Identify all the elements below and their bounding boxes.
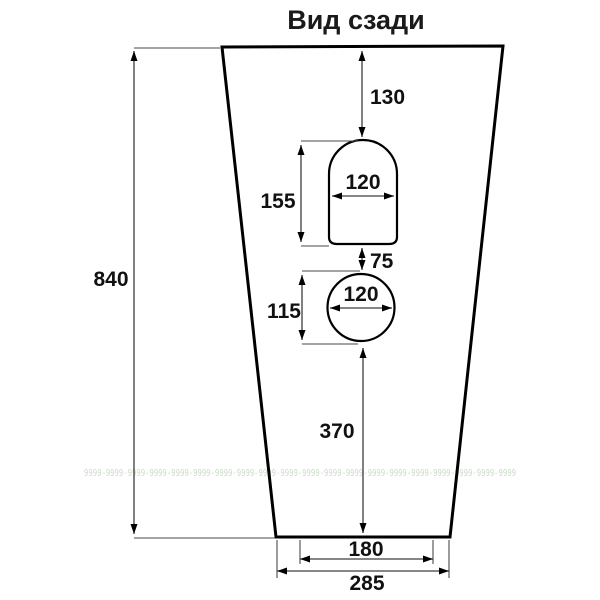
dim-circle-to-bottom: 370 <box>319 348 363 533</box>
dim-bottom-inner-width: 180 <box>300 538 433 564</box>
dim-top-to-arch: 130 <box>362 51 405 137</box>
dim-label-circle-to-bottom: 370 <box>319 420 354 443</box>
technical-drawing-canvas: Вид сзади 9999-9999-9999-9999-9999-9999-… <box>0 0 600 600</box>
dim-label-bottom-outer-width: 285 <box>349 572 384 595</box>
dim-arch-height: 155 <box>260 141 358 246</box>
drawing-title: Вид сзади <box>287 5 425 35</box>
watermark-text: 9999-9999-9999-9999-9999-9999-9999-9999-… <box>84 468 516 479</box>
dim-label-total-height: 840 <box>93 268 128 291</box>
dim-label-circle-width: 120 <box>343 283 378 306</box>
dim-label-arch-width: 120 <box>345 171 380 194</box>
dim-circle-width: 120 <box>330 283 392 308</box>
drawing-page: Вид сзади 9999-9999-9999-9999-9999-9999-… <box>0 0 600 600</box>
dim-label-circle-height: 115 <box>267 300 301 323</box>
dim-label-bottom-inner-width: 180 <box>348 538 383 561</box>
dim-label-top-to-arch: 130 <box>370 86 405 109</box>
dim-arch-width: 120 <box>332 171 394 196</box>
dim-label-arch-to-circle-gap: 75 <box>370 250 394 273</box>
dim-label-arch-height: 155 <box>260 190 295 213</box>
dim-arch-to-circle-gap: 75 <box>362 248 394 273</box>
